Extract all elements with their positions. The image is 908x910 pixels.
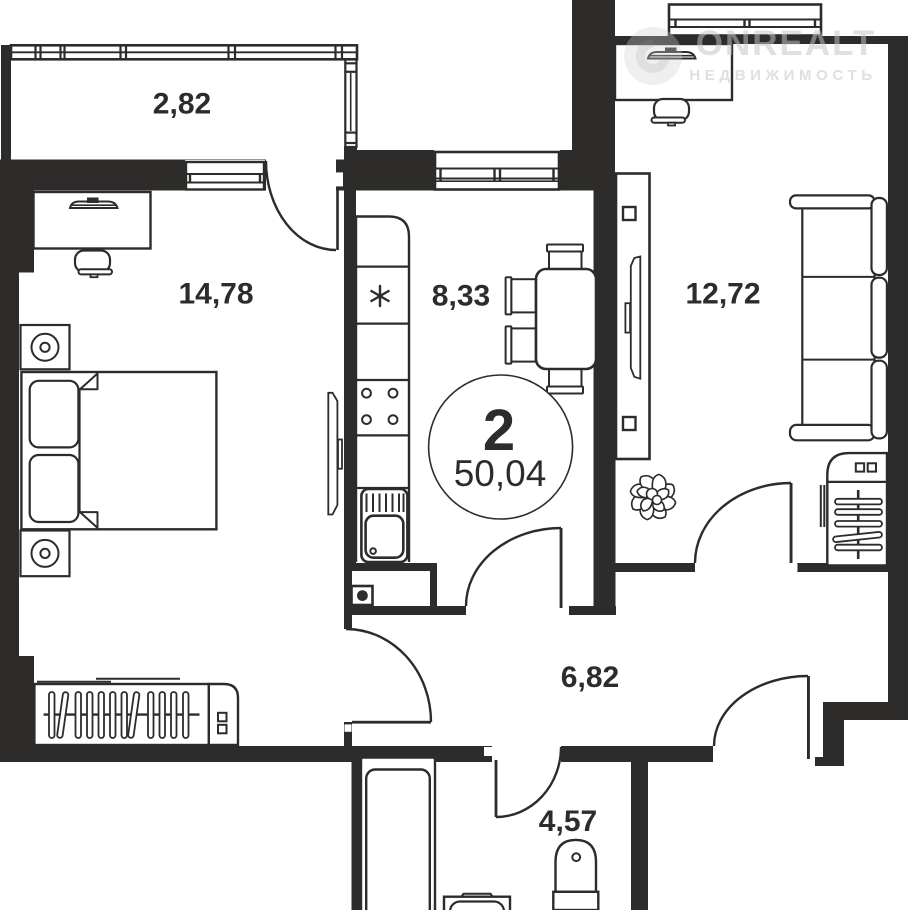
svg-text:ONREALT: ONREALT: [696, 24, 877, 63]
svg-text:6,82: 6,82: [561, 661, 619, 694]
svg-text:8,33: 8,33: [432, 280, 490, 313]
svg-text:НЕДВИЖИМОСТЬ: НЕДВИЖИМОСТЬ: [689, 67, 876, 84]
svg-text:4,57: 4,57: [539, 805, 597, 838]
svg-text:50,04: 50,04: [454, 453, 547, 494]
svg-text:2,82: 2,82: [153, 88, 211, 121]
svg-text:12,72: 12,72: [685, 278, 760, 311]
svg-text:14,78: 14,78: [178, 278, 253, 311]
